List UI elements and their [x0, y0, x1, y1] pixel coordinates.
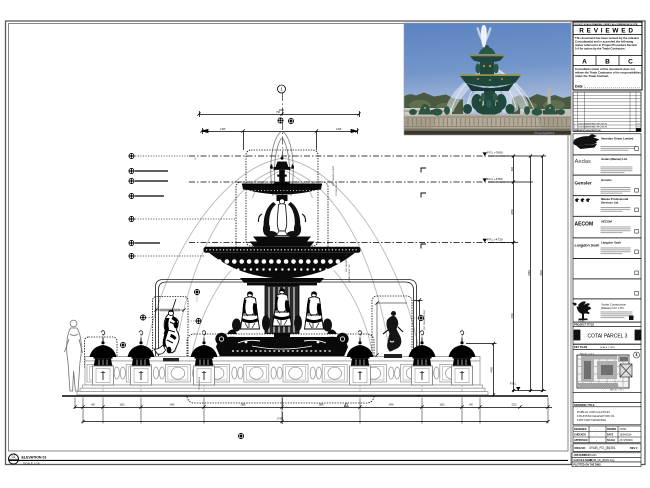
svg-text:PARCEL 1 LOT 2: PARCEL 1 LOT 2: [580, 353, 594, 356]
svg-text:3YUB_FD_(B)301.dwg: 3YUB_FD_(B)301.dwg: [590, 459, 615, 462]
svg-text:B: B: [605, 59, 610, 66]
svg-text:STONE BASE: STONE BASE: [198, 376, 201, 390]
svg-text:2050: 2050: [511, 209, 514, 215]
svg-text:AS SHOWN: AS SHOWN: [620, 439, 633, 442]
svg-text:C: C: [628, 59, 633, 66]
svg-text:GENERAL REVISION: GENERAL REVISION: [586, 126, 608, 129]
svg-text:7600: 7600: [540, 270, 543, 276]
svg-text:Langdon Seah: Langdon Seah: [575, 244, 601, 248]
svg-text:3YUB_FD_(B)301: 3YUB_FD_(B)301: [589, 446, 616, 450]
svg-text:6780: 6780: [528, 270, 531, 276]
svg-text:01: 01: [12, 455, 16, 459]
svg-text:REV 2: REV 2: [630, 446, 638, 450]
svg-text:SCALE 1:25: SCALE 1:25: [23, 461, 40, 465]
svg-text:SCALE: SCALE: [607, 439, 616, 442]
svg-text:under the Trade Contract.: under the Trade Contract.: [575, 74, 609, 78]
svg-text:CHECKED: CHECKED: [574, 433, 586, 436]
svg-text:DATE: DATE: [578, 129, 584, 132]
svg-text:TONE FINISH TOP: TONE FINISH TOP: [349, 263, 351, 282]
svg-text:DATE: DATE: [607, 433, 614, 436]
svg-text:A: A: [582, 59, 587, 66]
svg-text:1495: 1495: [220, 128, 226, 131]
svg-text:1495: 1495: [169, 405, 175, 407]
svg-text:DESCRIPTION: DESCRIPTION: [586, 130, 601, 132]
svg-text:FRP TRANSLUCENT: FRP TRANSLUCENT: [345, 251, 348, 272]
svg-text:REVIEWED: REVIEWED: [579, 28, 636, 35]
svg-text:1050: 1050: [119, 405, 125, 407]
svg-text:F.F.L +6780: F.F.L +6780: [487, 177, 503, 181]
svg-text:CHAD: CHAD: [620, 428, 627, 431]
svg-text:AECOM: AECOM: [575, 221, 594, 227]
svg-text:FOR FRP DRAWING: FOR FRP DRAWING: [577, 418, 607, 422]
svg-text:Gensler: Gensler: [601, 178, 613, 182]
svg-text:Venetian Orient Limited: Venetian Orient Limited: [601, 137, 634, 141]
svg-text:10/04/2016: 10/04/2016: [620, 433, 633, 436]
svg-text:PLOTTED ON THE DWG: PLOTTED ON THE DWG: [574, 463, 601, 466]
svg-text:Aedas: Aedas: [575, 159, 592, 165]
svg-text:©Copyright2016: ©Copyright2016: [534, 131, 555, 135]
svg-text:Services Ltd.: Services Ltd.: [601, 200, 619, 204]
svg-text:31123: 31123: [590, 454, 597, 457]
svg-text:F.F.L +4730: F.F.L +4730: [487, 238, 503, 242]
svg-text:750: 750: [276, 111, 281, 114]
svg-text:(Macau) CO. LTD.: (Macau) CO. LTD.: [601, 306, 625, 310]
svg-text:820: 820: [511, 166, 514, 171]
svg-text:1495: 1495: [388, 405, 394, 407]
svg-text:F.F.L +7600: F.F.L +7600: [487, 151, 503, 155]
svg-text:Date :: Date :: [575, 84, 585, 88]
svg-text:2215: 2215: [511, 405, 517, 407]
svg-text:DRAWING TITLE: DRAWING TITLE: [574, 403, 595, 407]
svg-text:CY: CY: [637, 123, 641, 125]
svg-text:Aedas (Macau) Ltd.: Aedas (Macau) Ltd.: [601, 157, 628, 161]
svg-text:17450: 17450: [277, 418, 284, 420]
svg-text:2885: 2885: [318, 405, 324, 407]
svg-text:SCALE 1:7500: SCALE 1:7500: [600, 346, 615, 349]
svg-text:DESIGNED: DESIGNED: [574, 428, 587, 431]
svg-text:PROJECT TITLE: PROJECT TITLE: [574, 322, 594, 326]
svg-text:JOB NUMBER: JOB NUMBER: [574, 454, 590, 457]
svg-text:ELEVATION 01: ELEVATION 01: [22, 456, 47, 460]
svg-text:STONE FINISH: STONE FINISH: [336, 181, 338, 196]
svg-text:FRP TRANSLUCENT: FRP TRANSLUCENT: [423, 309, 426, 330]
svg-text:KEY PLAN: KEY PLAN: [574, 345, 587, 349]
svg-text:GENERAL REVISION: GENERAL REVISION: [586, 122, 608, 125]
svg-text:AECOM: AECOM: [601, 219, 612, 223]
svg-text:APPROVED: APPROVED: [574, 439, 588, 442]
svg-text:Gensler: Gensler: [575, 180, 592, 185]
svg-text:DRAWN: DRAWN: [607, 428, 616, 431]
svg-text:2885: 2885: [240, 405, 246, 407]
svg-text:COTAI PARCEL 3: COTAI PARCEL 3: [588, 334, 628, 340]
svg-text:DWG NO: DWG NO: [575, 446, 586, 450]
svg-text:FRP TRANSLUCENT: FRP TRANSLUCENT: [332, 165, 335, 186]
svg-text:1050: 1050: [439, 405, 445, 407]
svg-text:5.4 for action by the Trade Co: 5.4 for action by the Trade Contractor.: [575, 46, 626, 50]
svg-text:PARCEL 1 LOT 1: PARCEL 1 LOT 1: [610, 389, 624, 392]
svg-text:4730: 4730: [511, 313, 514, 319]
svg-text:4450: 4450: [491, 367, 494, 373]
svg-text:1495: 1495: [336, 128, 342, 131]
svg-text:Langdon Seah: Langdon Seah: [601, 241, 621, 245]
